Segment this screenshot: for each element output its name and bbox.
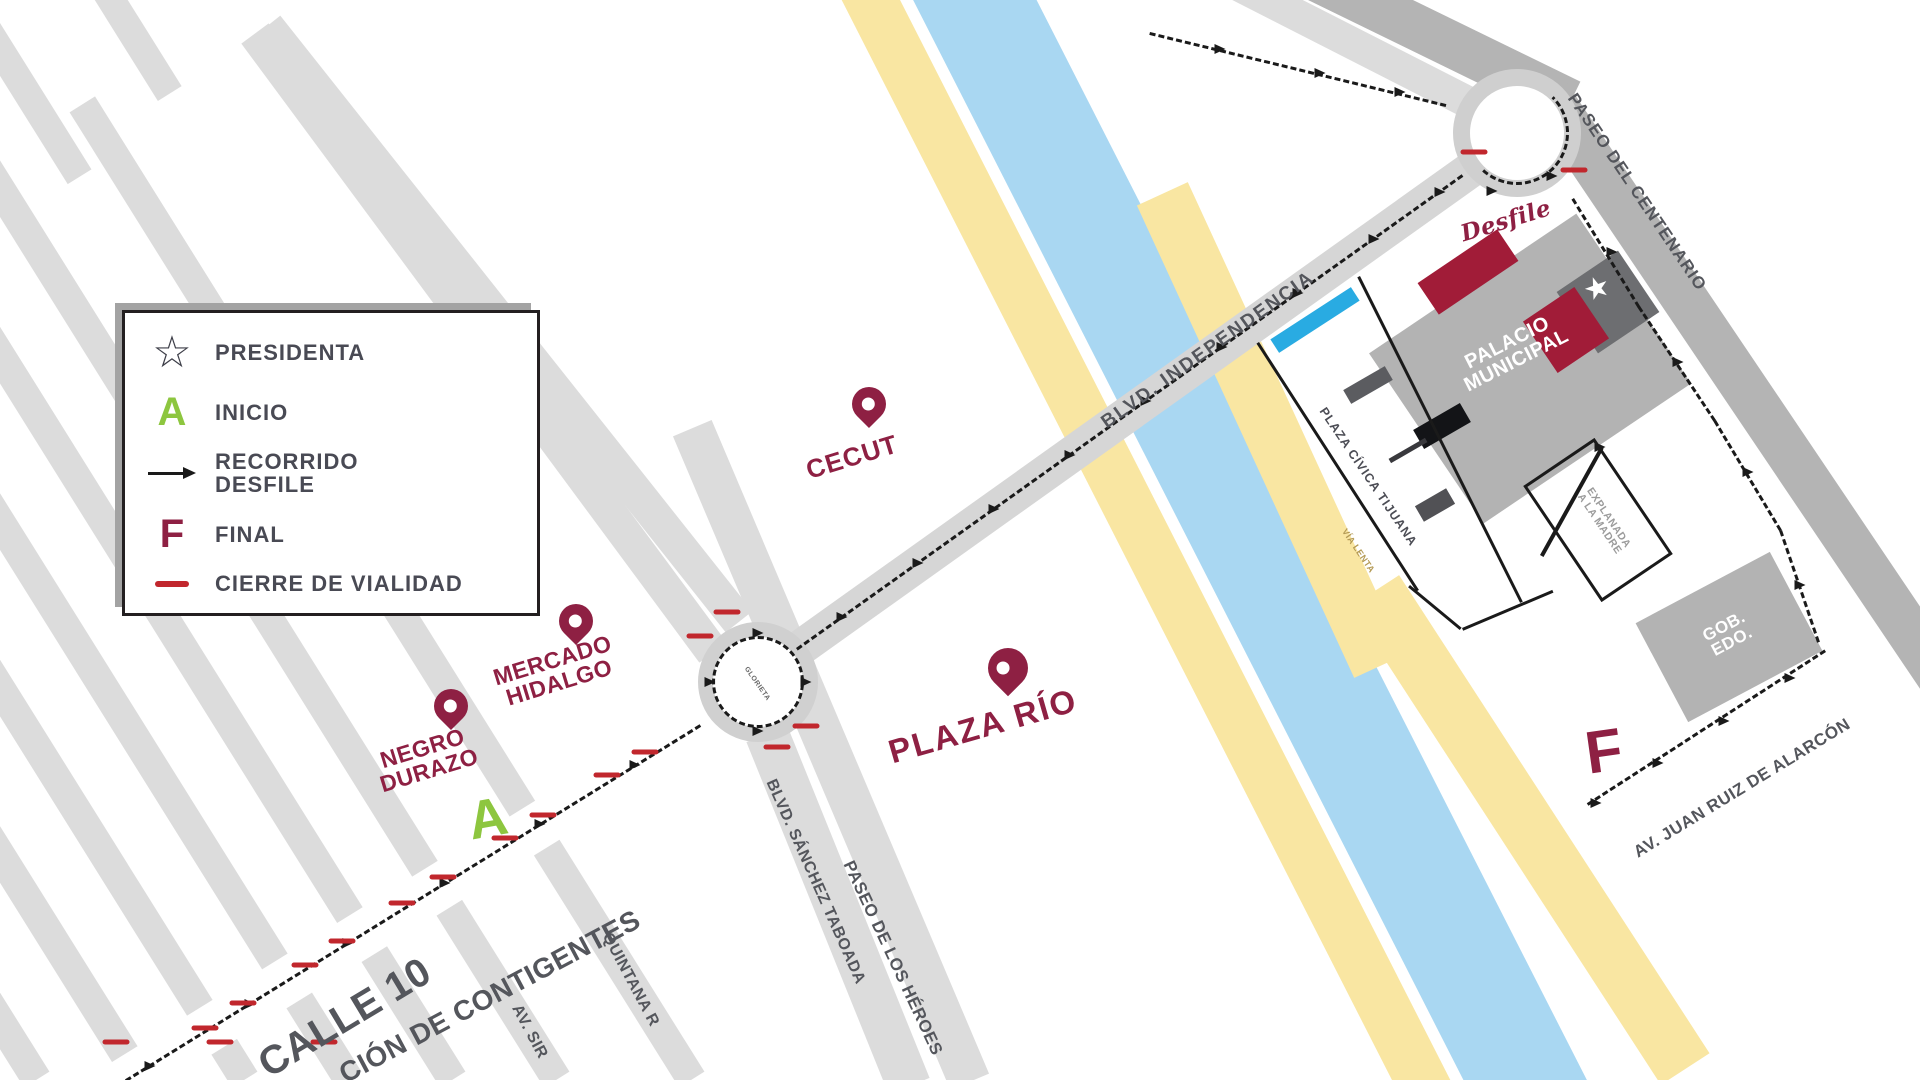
building-block — [1343, 366, 1393, 404]
legend-label: RECORRIDO DESFILE — [215, 450, 395, 496]
closure-tick — [430, 875, 457, 880]
route-arrow-head — [145, 1061, 156, 1071]
closure-tick — [1461, 150, 1488, 155]
route-arrow-head — [1607, 247, 1618, 257]
legend-row-presidenta: ☆ PRESIDENTA — [143, 331, 519, 375]
route-arrow-head — [1065, 450, 1076, 460]
legend-row-cierre: CIERRE DE VIALIDAD — [143, 572, 519, 595]
legend-label: CIERRE DE VIALIDAD — [215, 572, 463, 595]
closure-tick — [764, 745, 791, 750]
route-arrow-head — [1743, 467, 1754, 477]
route-arrow-head — [535, 819, 546, 829]
route-arrow-head — [913, 558, 924, 568]
closure-tick — [714, 610, 741, 615]
route-arrow-head — [1795, 580, 1806, 590]
closure-tick — [1561, 168, 1588, 173]
closure-tick — [230, 1001, 257, 1006]
closure-tick — [192, 1026, 219, 1031]
plaza-boundary-line — [1462, 590, 1553, 631]
route-arrow-head — [705, 677, 716, 687]
closure-tick — [292, 963, 319, 968]
building-block — [1389, 437, 1428, 462]
legend-label: PRESIDENTA — [215, 341, 365, 364]
route-arrow-head — [753, 726, 764, 736]
route-arrow-head — [1215, 44, 1226, 54]
route-arrow-head — [1785, 673, 1796, 683]
route-arrow-head — [630, 760, 641, 770]
route-arrow-head — [801, 677, 812, 687]
route-arrow-head — [440, 878, 451, 888]
route-arrow-head — [837, 612, 848, 622]
closure-tick — [594, 773, 621, 778]
route-arrow-head — [1719, 716, 1730, 726]
route-arrow-head — [1591, 798, 1602, 808]
route-arrow-head — [1315, 68, 1326, 78]
street-road — [78, 0, 181, 101]
street-road — [0, 0, 91, 184]
star-icon: ☆ — [143, 331, 201, 375]
route-arrow-head — [1435, 187, 1446, 197]
legend-label: FINAL — [215, 523, 285, 546]
route-arrow-head — [1673, 357, 1684, 367]
closure-tick — [389, 901, 416, 906]
closure-tick — [103, 1040, 130, 1045]
route-arrow-head — [1653, 758, 1664, 768]
closure-dash-icon — [143, 581, 201, 587]
route-arrow-head — [1487, 186, 1498, 196]
final-f-icon: F — [143, 512, 201, 557]
centenario-route-dashes — [1465, 81, 1569, 185]
route-arrow-head — [753, 628, 764, 638]
route-arrow-head — [1369, 234, 1380, 244]
route-arrow-icon — [143, 467, 201, 479]
legend-row-inicio: A INICIO — [143, 390, 519, 435]
route-arrow-head — [1547, 171, 1558, 181]
closure-tick — [207, 1040, 234, 1045]
building-block — [1415, 488, 1455, 522]
legend-box: ☆ PRESIDENTA A INICIO RECORRIDO DESFILE … — [122, 310, 540, 616]
closure-tick — [530, 813, 557, 818]
route-arrow-head — [1395, 87, 1406, 97]
closure-tick — [329, 939, 356, 944]
parade-route-map: CALLE 10 CIÓN DE CONTIGENTES AV. SIR QUI… — [0, 0, 1920, 1080]
legend-row-final: F FINAL — [143, 512, 519, 557]
closure-tick — [793, 724, 820, 729]
legend-label: INICIO — [215, 401, 288, 424]
legend-row-recorrido: RECORRIDO DESFILE — [143, 450, 519, 496]
inicio-a-icon: A — [143, 390, 201, 435]
closure-tick — [632, 750, 659, 755]
route-arrow-head — [1595, 442, 1606, 452]
closure-tick — [687, 634, 714, 639]
route-arrow-head — [989, 504, 1000, 514]
